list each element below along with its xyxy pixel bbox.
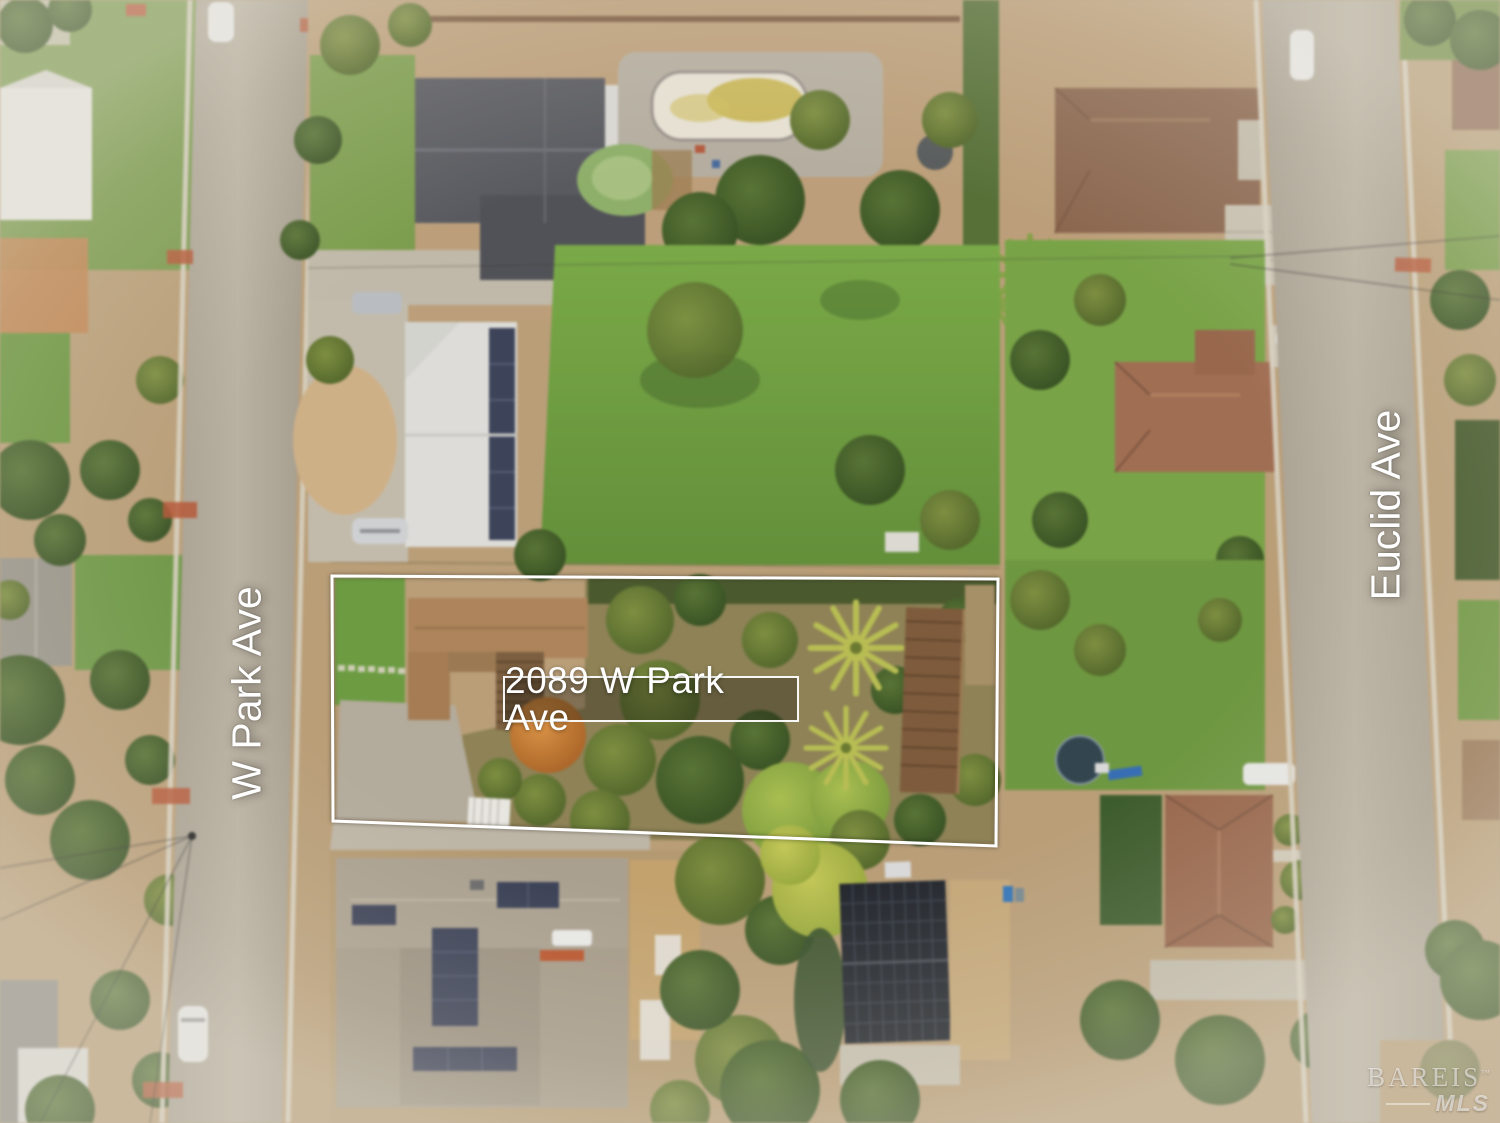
property-boundary-layer: [0, 0, 1500, 1123]
watermark-brand-line: BAREIS™: [1367, 1064, 1490, 1091]
watermark-trademark-icon: ™: [1481, 1068, 1490, 1078]
watermark-suffix-line: MLS: [1367, 1092, 1490, 1115]
property-address-label: 2089 W Park Ave: [503, 676, 799, 722]
watermark-rule: [1386, 1103, 1430, 1105]
watermark-brand: BAREIS: [1367, 1062, 1481, 1092]
bareis-mls-watermark: BAREIS™ MLS: [1367, 1064, 1490, 1115]
aerial-photo: 2089 W Park Ave W Park Ave Euclid Ave BA…: [0, 0, 1500, 1123]
watermark-suffix: MLS: [1435, 1092, 1490, 1115]
street-label-euclid-ave: Euclid Ave: [1363, 410, 1410, 601]
street-label-w-park-ave: W Park Ave: [224, 586, 271, 799]
